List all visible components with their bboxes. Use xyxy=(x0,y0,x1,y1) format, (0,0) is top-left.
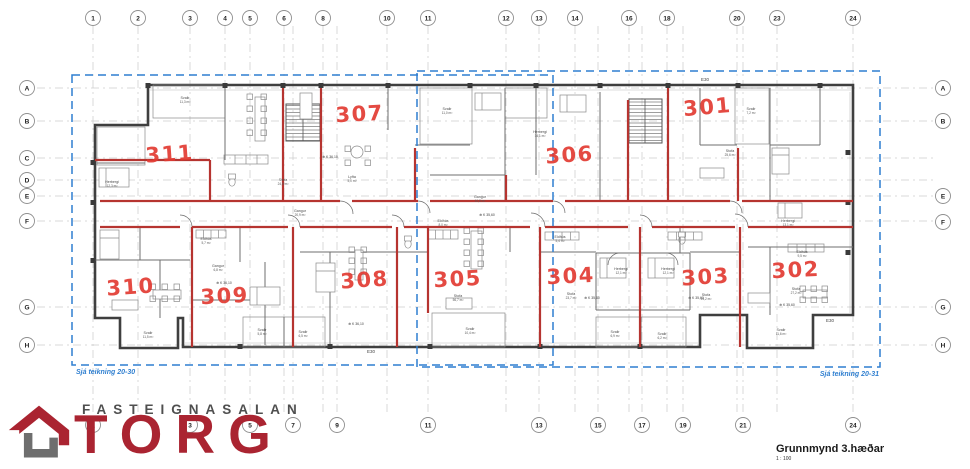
grid-marker-14: 14 xyxy=(568,11,583,26)
edge-label: E30 xyxy=(826,318,835,323)
grid-marker-label: 13 xyxy=(535,422,543,429)
grid-marker-21: 21 xyxy=(736,418,751,433)
grid-marker-label: 9 xyxy=(335,422,339,429)
grid-marker-label: 11 xyxy=(425,15,432,22)
grid-marker-label: A xyxy=(25,85,30,92)
grid-marker-9: 9 xyxy=(330,418,345,433)
grid-marker-E: E xyxy=(20,189,35,204)
room-area-label: 6,2 m² xyxy=(657,336,666,340)
room-area-label: 56,7 m² xyxy=(453,298,464,302)
wall-pier xyxy=(468,83,473,88)
grid-marker-18: 18 xyxy=(660,11,675,26)
elevation-mark: ⊕ K 36,10 xyxy=(322,155,338,159)
apartment-number-305: 305 xyxy=(433,266,483,292)
wall-pier xyxy=(281,83,286,88)
grid-marker-label: C xyxy=(25,155,30,162)
torg-house-icon xyxy=(6,400,72,464)
apartment-number-301: 301 xyxy=(682,93,732,121)
wall-pier xyxy=(846,250,851,255)
grid-marker-C: C xyxy=(20,151,35,166)
room-area-label: 6,9 m² xyxy=(610,334,619,338)
room-area-label: 11,0 m² xyxy=(442,111,453,115)
grid-marker-label: 24 xyxy=(849,15,857,22)
wall-pier xyxy=(598,83,603,88)
room-area-label: 23,7 m² xyxy=(566,296,577,300)
grid-marker-label: 10 xyxy=(383,15,391,22)
grid-marker-13: 13 xyxy=(532,418,547,433)
apartment-number-307: 307 xyxy=(335,101,385,127)
grid-marker-24: 24 xyxy=(846,11,861,26)
room-area-label: 12,1 m² xyxy=(663,271,674,275)
grid-marker-label: 23 xyxy=(773,15,781,22)
grid-marker-20: 20 xyxy=(730,11,745,26)
apartment-number-304: 304 xyxy=(546,263,596,289)
wall-pier xyxy=(91,160,96,165)
room-area-label: 24,8 m² xyxy=(278,182,289,186)
grid-marker-label: H xyxy=(25,342,30,349)
grid-marker-label: 16 xyxy=(625,15,633,22)
wall-pier xyxy=(91,258,96,263)
drawing-sheet: Sjá teikning 20-30Sjá teikning 20-31 Sva… xyxy=(0,0,970,469)
grid-marker-label: 1 xyxy=(91,15,95,22)
grid-marker-11: 11 xyxy=(421,418,436,433)
grid-marker-1: 1 xyxy=(86,11,101,26)
grid-marker-12: 12 xyxy=(499,11,514,26)
apartment-number-303: 303 xyxy=(681,263,731,290)
room-area-label: 5,7 m² xyxy=(201,241,210,245)
grid-marker-label: 6 xyxy=(282,15,286,22)
grid-marker-23: 23 xyxy=(770,11,785,26)
grid-marker-D: D xyxy=(20,173,35,188)
grid-marker-label: 11 xyxy=(425,422,432,429)
grid-marker-label: 21 xyxy=(739,422,747,429)
grid-marker-2: 2 xyxy=(131,11,146,26)
grid-marker-label: E xyxy=(25,193,30,200)
grid-marker-label: A xyxy=(941,85,946,92)
wall-pier xyxy=(846,150,851,155)
grid-marker-15: 15 xyxy=(591,418,606,433)
apartment-number-309: 309 xyxy=(200,283,250,309)
wall-pier xyxy=(223,83,228,88)
grid-marker-label: 5 xyxy=(248,15,252,22)
grid-marker-11: 11 xyxy=(421,11,436,26)
grid-marker-7: 7 xyxy=(286,418,301,433)
wall-pier xyxy=(146,83,151,88)
grid-marker-label: 17 xyxy=(638,422,646,429)
apartment-number-308: 308 xyxy=(340,266,390,293)
grid-marker-16: 16 xyxy=(622,11,637,26)
grid-marker-A: A xyxy=(936,81,951,96)
room-area-label: 7,2 m² xyxy=(746,111,755,115)
apartment-number-310: 310 xyxy=(106,273,156,300)
room-area-label: 6,5 m² xyxy=(298,334,307,338)
wall-pier xyxy=(736,83,741,88)
grid-marker-F: F xyxy=(20,214,35,229)
grid-marker-F: F xyxy=(936,215,951,230)
grid-marker-label: 20 xyxy=(733,15,741,22)
reference-box-label: Sjá teikning 20-30 xyxy=(76,369,135,376)
elevation-mark: ⊕ K 35,60 xyxy=(779,303,795,307)
drawing-title: Grunnmynd 3.hæðar xyxy=(776,443,884,455)
grid-marker-H: H xyxy=(20,338,35,353)
grid-marker-label: 18 xyxy=(663,15,671,22)
grid-marker-B: B xyxy=(20,114,35,129)
grid-marker-label: F xyxy=(941,219,945,226)
room-area-label: 11,5 m² xyxy=(143,335,154,339)
drawing-scale: 1 : 100 xyxy=(776,456,884,462)
room-area-label: 8,0 m² xyxy=(438,223,447,227)
grid-marker-label: H xyxy=(941,342,946,349)
elevation-mark: ⊕ K 35,60 xyxy=(479,213,495,217)
reference-box-label: Sjá teikning 20-31 xyxy=(820,371,879,378)
grid-marker-label: 7 xyxy=(291,422,295,429)
room-area-label: 11,3 m² xyxy=(180,100,191,104)
grid-marker-label: F xyxy=(25,218,29,225)
grid-marker-label: B xyxy=(25,118,30,125)
wall-pier xyxy=(91,200,96,205)
grid-marker-B: B xyxy=(936,114,951,129)
grid-marker-label: 15 xyxy=(594,422,602,429)
grid-marker-label: E xyxy=(941,193,946,200)
room-area-label: 10,8 m² xyxy=(475,199,486,203)
wall-pier xyxy=(319,83,324,88)
elevation-mark: ⊕ K 35,60 xyxy=(688,296,704,300)
grid-marker-G: G xyxy=(20,300,35,315)
grid-marker-6: 6 xyxy=(277,11,292,26)
edge-label: E30 xyxy=(701,77,710,82)
grid-marker-label: 24 xyxy=(849,422,857,429)
grid-marker-H: H xyxy=(936,338,951,353)
room-area-label: 14,1 m² xyxy=(535,134,546,138)
wall-pier xyxy=(328,344,333,349)
logo-brand: TORG xyxy=(74,406,284,464)
room-area-label: 11,6 m² xyxy=(776,332,787,336)
room-area-label: 5,4 m² xyxy=(555,239,564,243)
room-area-label: 25,6 m² xyxy=(725,153,736,157)
room-area-label: 13,1 m² xyxy=(783,223,794,227)
room-area-label: 27,2 m² xyxy=(791,291,802,295)
grid-marker-label: 4 xyxy=(223,15,227,22)
room-area-label: 20,9 m² xyxy=(295,213,306,217)
apartment-number-311: 311 xyxy=(145,140,195,167)
floor-plan-svg: Sjá teikning 20-30Sjá teikning 20-31 Sva… xyxy=(0,0,970,469)
grid-marker-label: 13 xyxy=(535,15,543,22)
wall-pier xyxy=(666,83,671,88)
room-area-label: 5,0 m² xyxy=(347,179,356,183)
grid-marker-G: G xyxy=(936,300,951,315)
apartment-number-306: 306 xyxy=(545,141,595,168)
grid-marker-13: 13 xyxy=(532,11,547,26)
grid-marker-label: 19 xyxy=(679,422,687,429)
grid-marker-10: 10 xyxy=(380,11,395,26)
room-area-label: 12,3 m² xyxy=(107,184,118,188)
grid-marker-17: 17 xyxy=(635,418,650,433)
grid-marker-4: 4 xyxy=(218,11,233,26)
wall-pier xyxy=(238,344,243,349)
wall-pier xyxy=(818,83,823,88)
room-area-label: 6,8 m² xyxy=(213,268,222,272)
grid-marker-3: 3 xyxy=(183,11,198,26)
room-area-label: 5,8 m² xyxy=(257,332,266,336)
grid-marker-label: 3 xyxy=(188,15,192,22)
grid-marker-label: 8 xyxy=(321,15,325,22)
wall-pier xyxy=(534,83,539,88)
room-area-label: 10,4 m² xyxy=(465,331,476,335)
grid-marker-19: 19 xyxy=(676,418,691,433)
grid-marker-label: G xyxy=(940,304,945,311)
grid-marker-8: 8 xyxy=(316,11,331,26)
title-block: Grunnmynd 3.hæðar 1 : 100 xyxy=(776,443,884,462)
grid-marker-label: 14 xyxy=(571,15,579,22)
elevation-mark: ⊕ K 35,60 xyxy=(584,296,600,300)
grid-marker-A: A xyxy=(20,81,35,96)
wall-pier xyxy=(386,83,391,88)
wall-pier xyxy=(428,344,433,349)
room-area-label: 12,1 m² xyxy=(616,271,627,275)
grid-marker-E: E xyxy=(936,189,951,204)
edge-label: E30 xyxy=(367,349,376,354)
grid-marker-label: G xyxy=(24,304,29,311)
grid-marker-label: 2 xyxy=(136,15,140,22)
grid-marker-label: D xyxy=(25,177,30,184)
apartment-number-302: 302 xyxy=(771,257,821,283)
grid-marker-label: B xyxy=(941,118,946,125)
grid-marker-label: 12 xyxy=(502,15,510,22)
elevation-mark: ⊕ K 36,10 xyxy=(348,322,364,326)
grid-marker-5: 5 xyxy=(243,11,258,26)
grid-marker-24: 24 xyxy=(846,418,861,433)
